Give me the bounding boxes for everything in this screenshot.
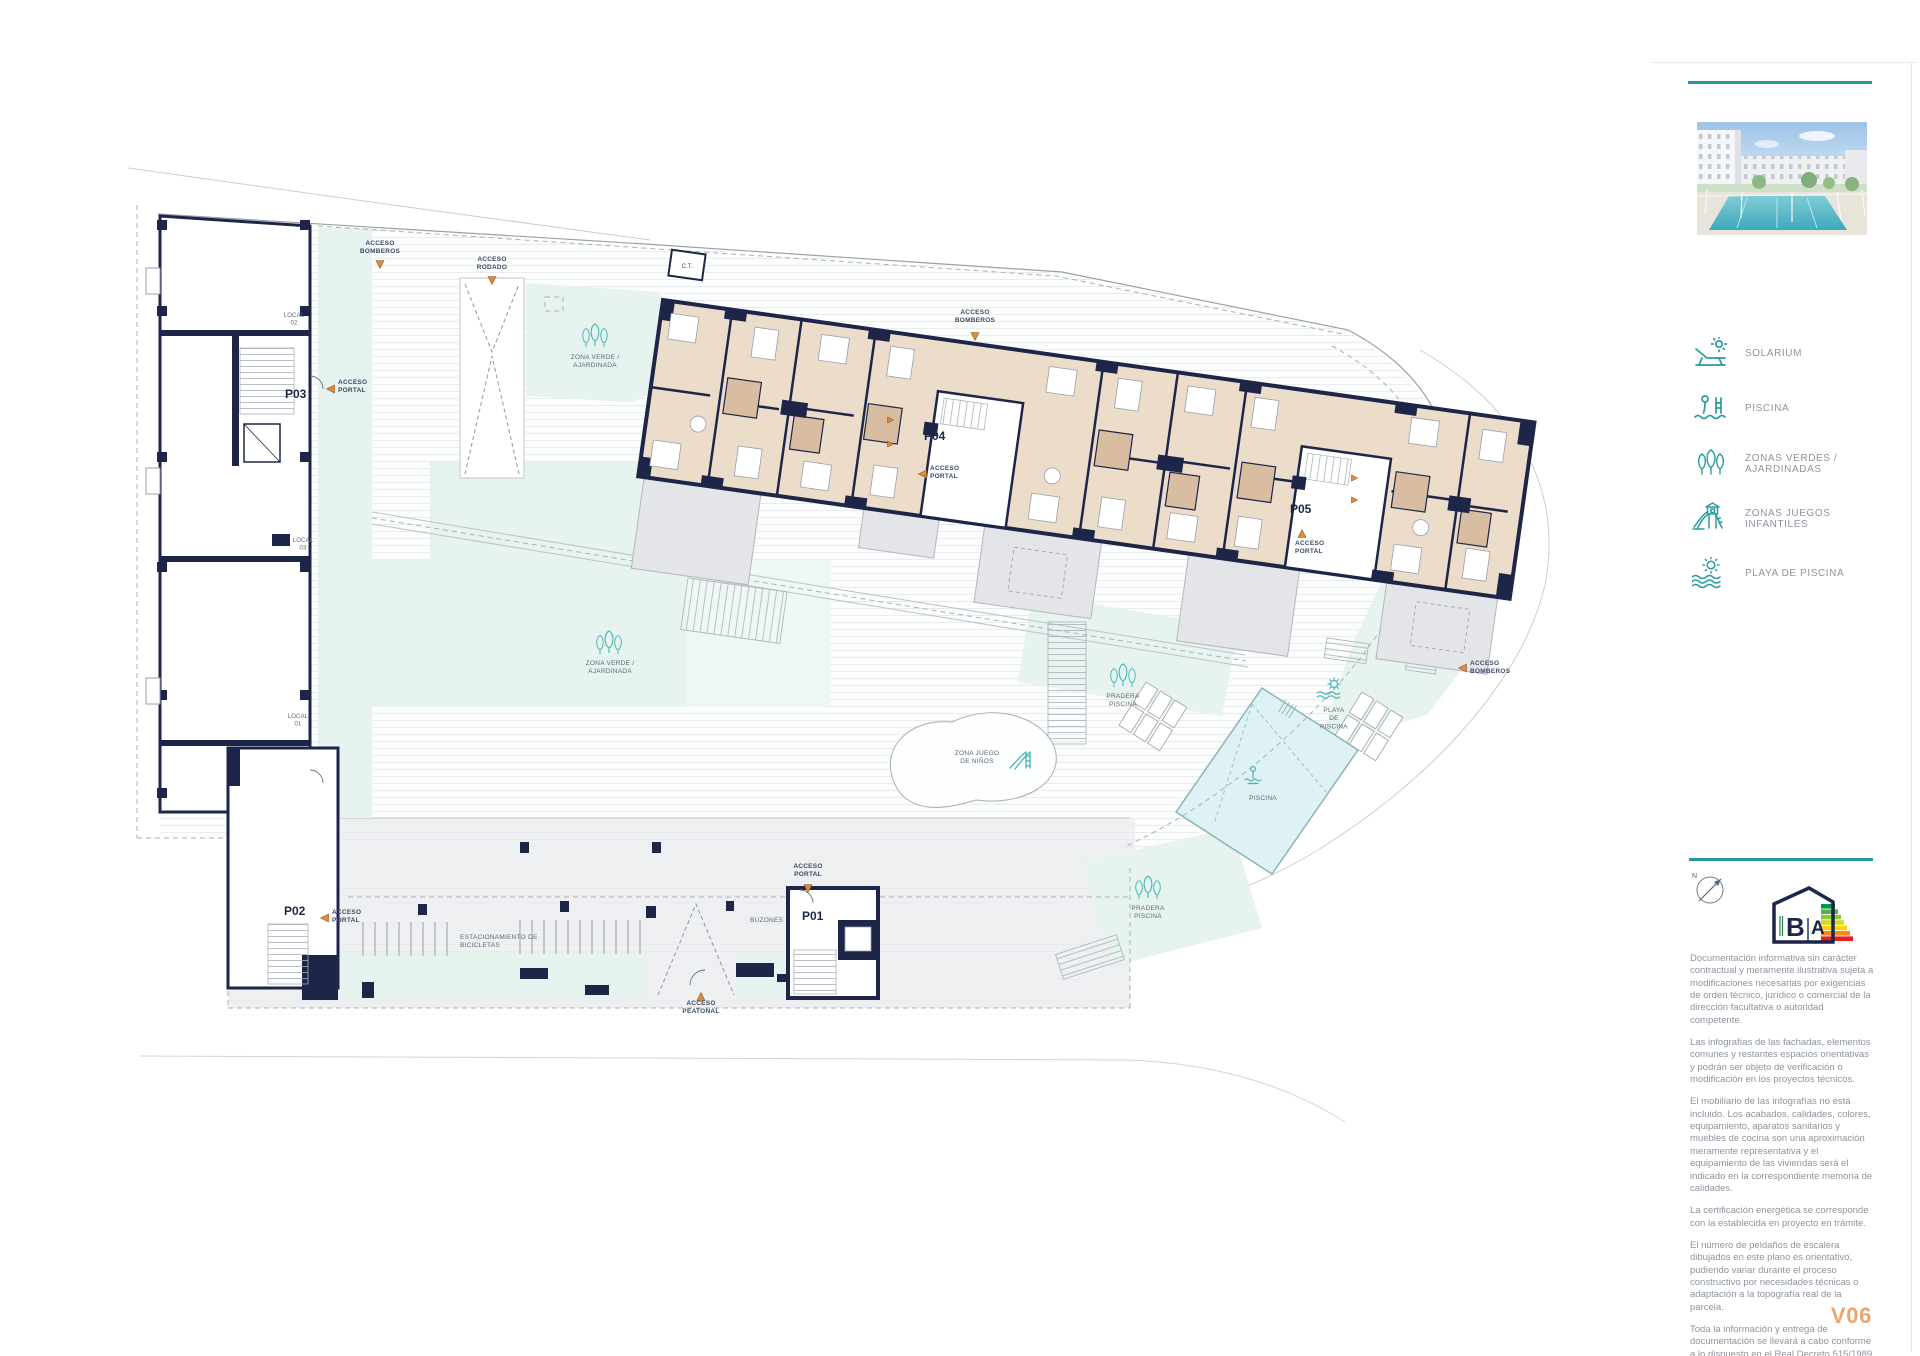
legend-label: PLAYA DE PISCINA	[1745, 568, 1844, 579]
ct-label: C.T.	[682, 264, 693, 270]
solarium-icon	[1692, 337, 1730, 371]
energy-letter-b: B	[1786, 912, 1805, 942]
project-photo	[1697, 122, 1867, 235]
buzones-label: BUZONES	[750, 917, 784, 924]
acceso-bomberos-label: ACCESOBOMBEROS	[955, 309, 996, 324]
zona-juego-label: ZONA JUEGODE NIÑOS	[955, 750, 999, 765]
acceso-peatonal-label: ACCESOPEATONAL	[682, 1000, 719, 1015]
zona-verde-label: ZONA VERDE /AJARDINADA	[586, 660, 635, 675]
panel-rule-bottom	[1689, 858, 1873, 861]
page-border-top	[1652, 62, 1916, 63]
acceso-portal-label: ACCESOPORTAL	[930, 465, 959, 480]
portal-p04-label: P04	[924, 429, 946, 443]
legend-item-playa-piscina: PLAYA DE PISCINA	[1692, 546, 1892, 601]
acceso-rodado-label: ACCESORODADO	[477, 256, 507, 271]
legend-item-piscina: PISCINA	[1692, 381, 1892, 436]
portal-01-building	[788, 888, 878, 998]
energy-letter-a: A	[1811, 918, 1825, 939]
page-border-right	[1911, 62, 1912, 1352]
portal-p03-label: P03	[285, 387, 307, 401]
disclaimer-paragraph: El mobiliario de las infografías no está…	[1690, 1096, 1875, 1195]
site-plan-drawing: ACCESOBOMBEROS ACCESORODADO ACCESOBOMBER…	[0, 0, 1680, 1356]
disclaimer-paragraph: La certificación energética se correspon…	[1690, 1205, 1875, 1230]
zona-verde-label: ZONA VERDE /AJARDINADA	[571, 354, 620, 369]
portal-p02-label: P02	[284, 904, 306, 918]
legend: SOLARIUM PISCINA ZONAS VERDES / AJARDINA…	[1692, 326, 1892, 601]
acceso-portal-label: ACCESOPORTAL	[793, 863, 822, 878]
portal-p05-label: P05	[1290, 502, 1312, 516]
pradera-piscina-label: PRADERAPISCINA	[1131, 905, 1165, 920]
acceso-portal-label: ACCESOPORTAL	[1295, 540, 1324, 555]
acceso-portal-label: ACCESOPORTAL	[332, 909, 361, 924]
acceso-bomberos-label: ACCESOBOMBEROS	[1470, 660, 1511, 675]
legend-item-juegos-infantiles: ZONAS JUEGOS INFANTILES	[1692, 491, 1892, 546]
portal-p01-label: P01	[802, 909, 824, 923]
acceso-portal-label: ACCESOPORTAL	[338, 379, 367, 394]
north-label: N	[1692, 873, 1697, 880]
panel-rule-top	[1688, 81, 1872, 84]
legend-label: ZONAS VERDES / AJARDINADAS	[1745, 453, 1892, 475]
green-zones-icon	[1692, 447, 1730, 481]
legend-label: SOLARIUM	[1745, 348, 1802, 359]
disclaimer-paragraph: Documentación informativa sin carácter c…	[1690, 953, 1875, 1027]
vehicle-ramp	[460, 278, 524, 478]
left-building	[146, 216, 338, 1000]
acceso-bomberos-label: ACCESOBOMBEROS	[360, 240, 401, 255]
energy-certificate-logo: B A	[1771, 884, 1859, 948]
legal-disclaimer: Documentación informativa sin carácter c…	[1690, 953, 1875, 1356]
north-compass-icon: N	[1686, 866, 1730, 910]
pool-beach-icon	[1692, 557, 1730, 591]
version-label: V06	[1760, 1303, 1872, 1329]
legend-item-solarium: SOLARIUM	[1692, 326, 1892, 381]
legend-label: ZONAS JUEGOS INFANTILES	[1745, 508, 1892, 530]
pool-icon	[1692, 392, 1730, 426]
site-plan-page: ACCESOBOMBEROS ACCESORODADO ACCESOBOMBER…	[0, 0, 1920, 1356]
disclaimer-paragraph: Las infografías de las fachadas, element…	[1690, 1037, 1875, 1086]
legend-label: PISCINA	[1745, 403, 1789, 414]
pradera-piscina-label: PRADERAPISCINA	[1106, 693, 1140, 708]
piscina-label: PISCINA	[1249, 795, 1277, 802]
playground-icon	[1692, 502, 1730, 536]
legend-item-zonas-verdes: ZONAS VERDES / AJARDINADAS	[1692, 436, 1892, 491]
